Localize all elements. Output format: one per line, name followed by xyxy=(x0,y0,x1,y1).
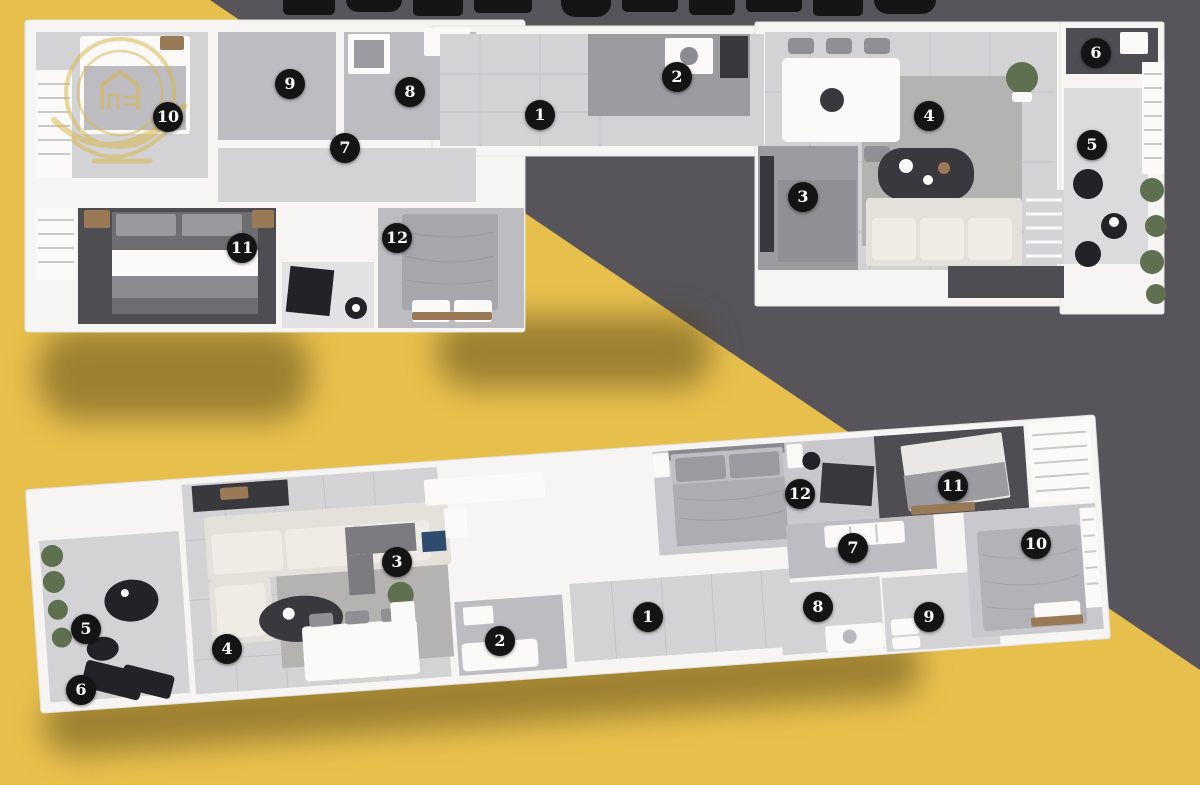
upper-balcony xyxy=(1064,28,1167,304)
plant-icon xyxy=(1146,284,1166,304)
room-marker-lower-7: 7 xyxy=(838,533,868,563)
room-marker-upper-1: 1 xyxy=(525,100,555,130)
room-marker-upper-12: 12 xyxy=(382,223,412,253)
room-marker-upper-9: 9 xyxy=(275,69,305,99)
upper-floor-plan xyxy=(20,12,1170,347)
room-marker-upper-10: 10 xyxy=(153,102,183,132)
plant-icon xyxy=(1006,62,1038,94)
room-marker-upper-4: 4 xyxy=(914,101,944,131)
room-marker-lower-12: 12 xyxy=(785,479,815,509)
room-marker-upper-6: 6 xyxy=(1081,38,1111,68)
plant-icon xyxy=(1140,178,1164,202)
room-marker-upper-7: 7 xyxy=(330,133,360,163)
upper-room-11 xyxy=(78,208,276,324)
plant-icon xyxy=(1145,215,1167,237)
room-marker-upper-11: 11 xyxy=(227,233,257,263)
lower-balcony-5-6 xyxy=(39,531,190,708)
lower-bathroom-8 xyxy=(778,576,885,655)
room-marker-upper-5: 5 xyxy=(1077,130,1107,160)
floor-plan-poster: 109871246531112564321121171089 xyxy=(0,0,1200,785)
lower-floor-plan xyxy=(23,407,1115,724)
room-marker-lower-9: 9 xyxy=(914,602,944,632)
upper-mid-bathroom xyxy=(282,262,374,328)
room-marker-lower-6: 6 xyxy=(66,675,96,705)
room-marker-upper-2: 2 xyxy=(662,62,692,92)
room-marker-lower-11: 11 xyxy=(938,471,968,501)
room-marker-upper-3: 3 xyxy=(788,182,818,212)
room-marker-lower-1: 1 xyxy=(633,602,663,632)
room-marker-lower-3: 3 xyxy=(382,547,412,577)
room-marker-lower-10: 10 xyxy=(1021,529,1051,559)
lower-corridor-1 xyxy=(569,569,794,662)
plant-icon xyxy=(1140,250,1164,274)
room-marker-lower-2: 2 xyxy=(485,626,515,656)
room-marker-upper-8: 8 xyxy=(395,77,425,107)
room-marker-lower-4: 4 xyxy=(212,634,242,664)
room-marker-lower-5: 5 xyxy=(71,614,101,644)
room-marker-lower-8: 8 xyxy=(803,592,833,622)
